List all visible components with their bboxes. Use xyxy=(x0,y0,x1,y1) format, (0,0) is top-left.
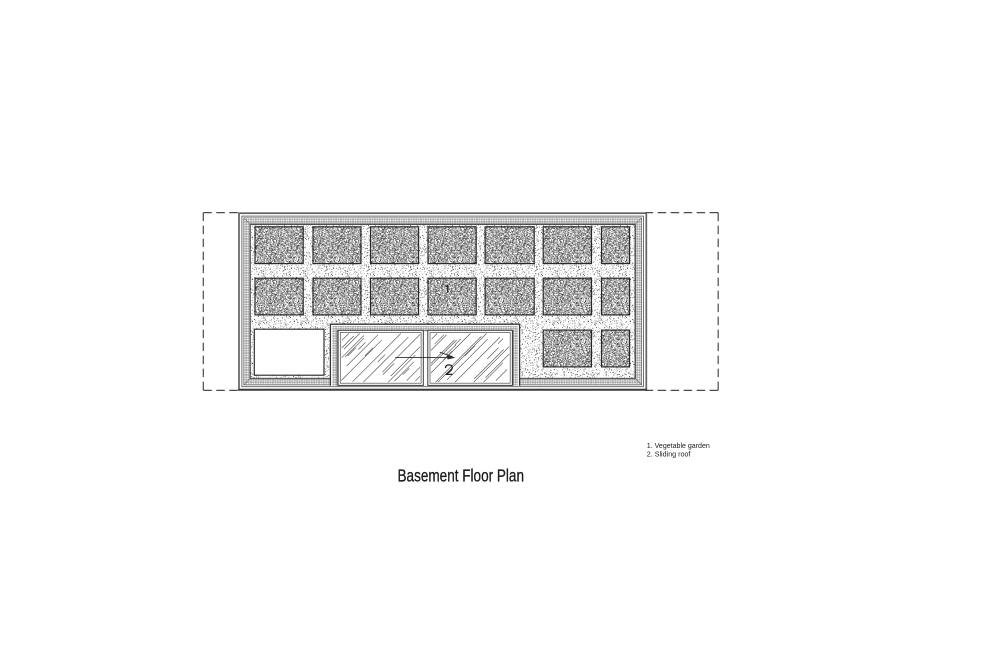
svg-text:Basement Floor Plan: Basement Floor Plan xyxy=(398,465,525,485)
svg-text:2. Sliding roof: 2. Sliding roof xyxy=(647,450,692,459)
